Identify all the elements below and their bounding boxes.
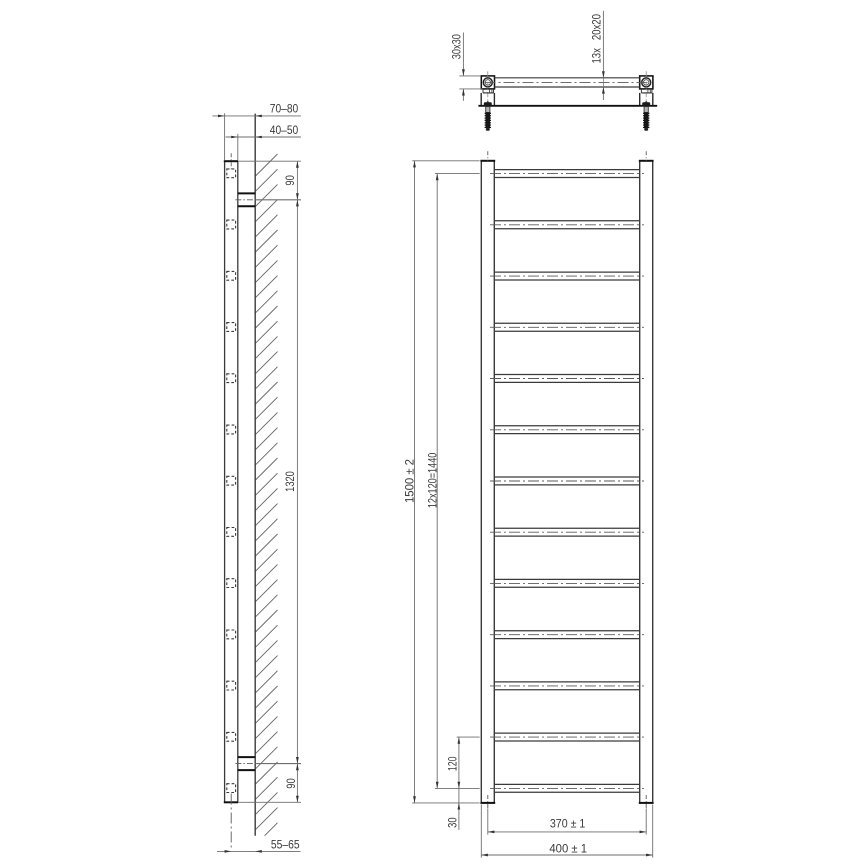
svg-text:400 ± 1: 400 ± 1	[549, 841, 587, 855]
svg-text:1320: 1320	[283, 471, 297, 492]
svg-text:12x120=1440: 12x120=1440	[425, 452, 439, 508]
svg-text:90: 90	[284, 778, 298, 789]
svg-text:90: 90	[283, 175, 297, 186]
svg-text:370 ± 1: 370 ± 1	[550, 817, 586, 831]
svg-text:30x30: 30x30	[449, 34, 463, 59]
svg-text:13x 20x20: 13x 20x20	[590, 14, 604, 64]
svg-text:55–65: 55–65	[271, 837, 300, 851]
svg-text:40–50: 40–50	[270, 123, 299, 137]
svg-text:30: 30	[445, 817, 459, 828]
svg-text:120: 120	[445, 756, 459, 771]
svg-text:70–80: 70–80	[270, 102, 299, 116]
svg-text:1500 ± 2: 1500 ± 2	[403, 459, 417, 503]
